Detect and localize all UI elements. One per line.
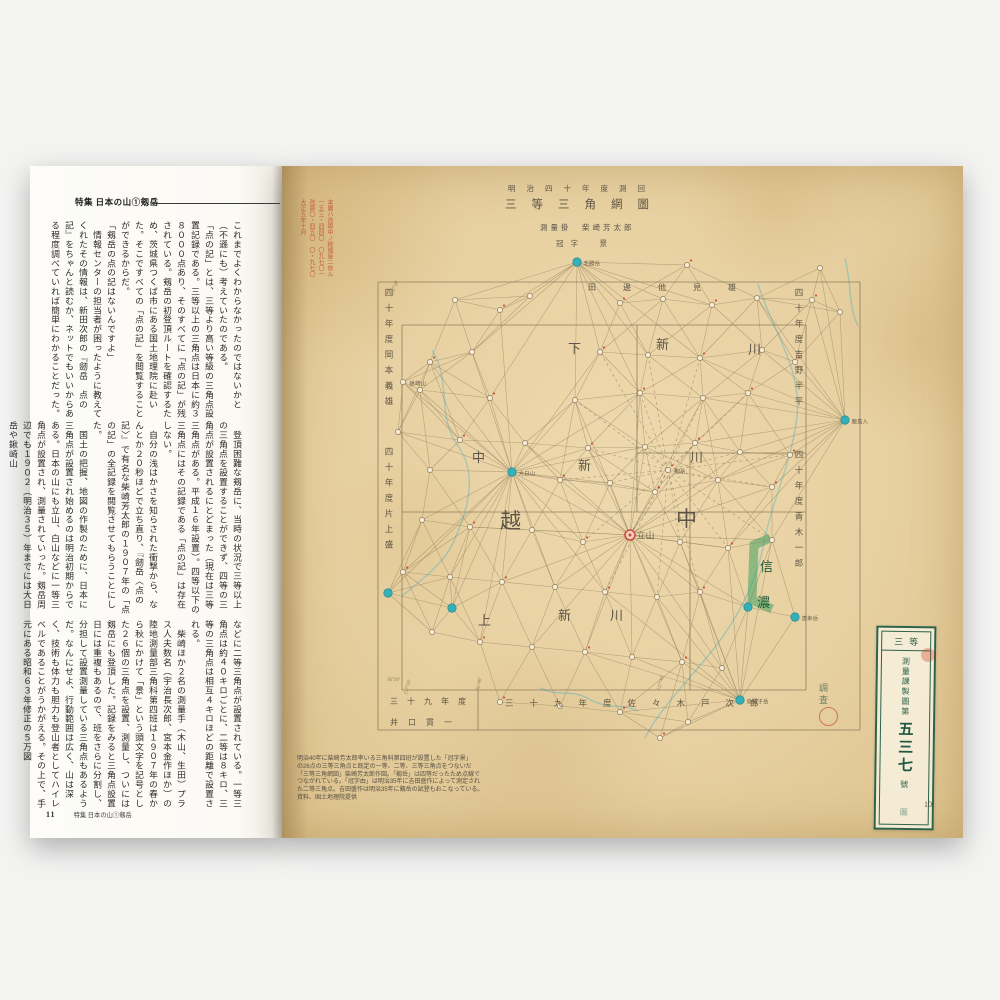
map-caption: 明治40年に柴崎芳太郎率いる三角科第四班が設置した「冠字景」 の26点の三等三角… — [297, 756, 539, 803]
archive-label-number-suffix: 號 — [900, 779, 908, 790]
right-page-map-sheet — [282, 166, 963, 838]
red-stamp-annotation: 本圖ハ改算中ノ經緯度ニ依ル 一五三・四四〇 〇九七〇一 改算〇・四五〇 〇・九七… — [293, 199, 333, 339]
article-text-band-3: などに二等三角点が設置されている。一等三角点は約４０キロごとに、二等は８キロ、三… — [38, 620, 244, 808]
magazine-spread: 特集 日本の山①剱岳 これまでよくわからなかったのではないかと（不遜にも）考えて… — [0, 0, 1000, 1000]
red-seal-icon — [819, 707, 838, 726]
archive-label-bottom: 圖 — [900, 807, 908, 818]
article-text-band-1: これまでよくわからなかったのではないかと（不遜にも）考えていたのである。 「点の… — [38, 221, 244, 419]
inspection-stamp-text: 調査 — [817, 683, 830, 707]
red-seal-small-icon — [921, 648, 935, 662]
page-title: 特集 日本の山①剱岳 — [75, 196, 159, 208]
running-title: 特集 日本の山①剱岳 — [74, 812, 132, 819]
page-number-right: 10 — [924, 800, 932, 809]
left-footer: 11 特集 日本の山①剱岳 — [46, 804, 132, 822]
page-number-left: 11 — [46, 810, 56, 819]
archive-label-number: 五三七 — [894, 721, 916, 775]
article-text-band-2: 登頂困難な剱岳に、当時の状況で三等以上の三角点を設置することができず、四等の三角… — [38, 421, 244, 617]
header-rule — [152, 203, 280, 204]
archive-label-series: 測量課製圖第 — [900, 657, 912, 717]
